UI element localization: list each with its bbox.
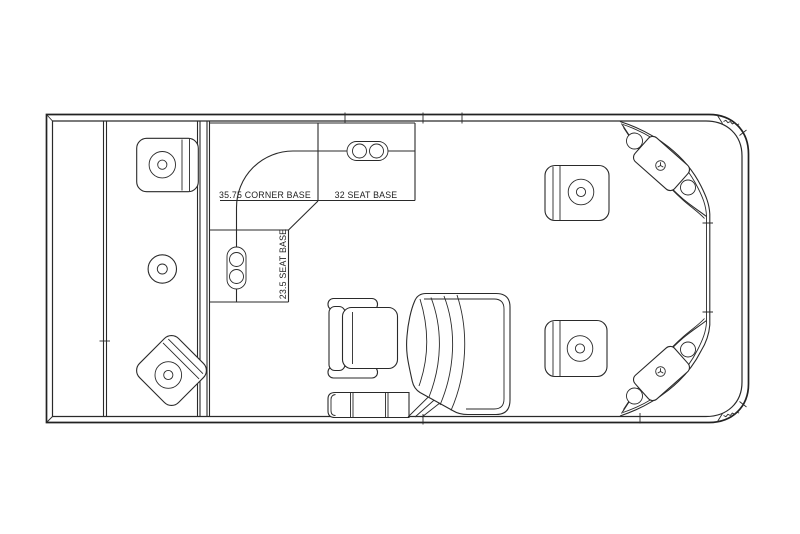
- chaise-lounge: [407, 294, 510, 415]
- pedestal-seat-top-left: [137, 138, 199, 191]
- label-seat-base-23: 23.5 SEAT BASE: [278, 229, 288, 299]
- seat-base-right-top: [545, 166, 609, 221]
- pedestal-mount: [148, 255, 176, 283]
- seat-base-right-bottom: [545, 321, 607, 377]
- seat-cushion: [343, 308, 398, 369]
- cupholder: [370, 144, 384, 158]
- label-corner-base: 35.75 CORNER BASE: [219, 190, 311, 200]
- cupholder: [353, 144, 367, 158]
- captain-chair: [328, 299, 398, 379]
- cupholder: [230, 253, 244, 267]
- cupholders-32: [347, 142, 388, 161]
- cupholder: [230, 270, 244, 284]
- bench-corner-diagonal: [289, 201, 319, 230]
- bow-platform-top: [622, 124, 707, 219]
- floorplan-svg: 35.75 CORNER BASE 32 SEAT BASE 23.5 SEAT…: [0, 0, 800, 534]
- deck-circle: [627, 133, 643, 149]
- deck-circle: [681, 342, 696, 357]
- label-seat-base-32: 32 SEAT BASE: [335, 190, 398, 200]
- corner-bench: 35.75 CORNER BASE 32 SEAT BASE 23.5 SEAT…: [210, 123, 416, 302]
- brand-stamp-bottom: [718, 402, 747, 422]
- deck-circle: [627, 388, 643, 404]
- deck-circle: [681, 180, 696, 195]
- stern-gate-lines: [100, 121, 111, 417]
- bench-cushion-line: [237, 151, 416, 302]
- bow-platform-bottom: [622, 319, 707, 414]
- pedestal-seat-diamond: [132, 331, 210, 409]
- pontoon-floorplan-page: 35.75 CORNER BASE 32 SEAT BASE 23.5 SEAT…: [0, 0, 800, 534]
- corner-chamfer: [47, 115, 53, 423]
- panel-tick: [703, 223, 714, 312]
- cupholders-23: [227, 247, 246, 289]
